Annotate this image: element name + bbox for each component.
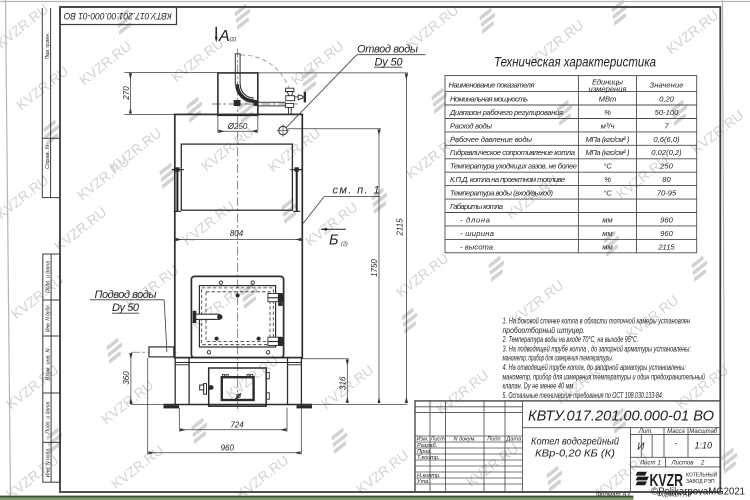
svg-text:- ширина: - ширина (460, 229, 494, 238)
svg-text:мм: мм (602, 229, 613, 238)
svg-text:Инв. N подл.: Инв. N подл. (46, 447, 52, 477)
svg-text:-: - (675, 439, 678, 449)
svg-text:(2): (2) (341, 242, 348, 248)
svg-text:Расход воды: Расход воды (450, 121, 492, 130)
svg-text:МПа (кгс/см² ): МПа (кгс/см² ) (586, 135, 630, 144)
svg-text:Справ. N: Справ. N (45, 144, 51, 169)
svg-text:1750: 1750 (370, 259, 379, 277)
svg-text:КВТУ.017.201.00.000-01 ВО: КВТУ.017.201.00.000-01 ВО (64, 11, 172, 21)
svg-text:Листов: Листов (671, 460, 694, 466)
svg-text:Ø250: Ø250 (227, 122, 248, 131)
svg-text:0,02(0,2): 0,02(0,2) (651, 148, 682, 157)
svg-text:Котел водогрейный: Котел водогрейный (531, 436, 619, 448)
svg-text:Температура уходящих газов, не: Температура уходящих газов, не более (450, 162, 577, 171)
svg-text:МПа (кгс/см² ): МПа (кгс/см² ) (586, 148, 630, 157)
svg-text:2115: 2115 (657, 242, 675, 251)
svg-text:960: 960 (221, 444, 235, 453)
svg-text:Dy 50: Dy 50 (112, 302, 140, 314)
svg-text:5. Остальные технические треб: 5. Остальные технические требования по О… (503, 390, 664, 400)
svg-text:(2): (2) (230, 37, 237, 43)
svg-text:КОТЕЛЬНЫЙ: КОТЕЛЬНЫЙ (686, 471, 718, 479)
svg-text:316: 316 (339, 376, 348, 390)
svg-text:50-100: 50-100 (655, 108, 679, 117)
svg-text:2: 2 (700, 460, 705, 466)
svg-text:Температура воды (вход/выход): Температура воды (вход/выход) (450, 189, 553, 198)
svg-text:250: 250 (659, 162, 673, 171)
svg-text:270: 270 (122, 86, 131, 101)
svg-text:ЗАВОД РЭП: ЗАВОД РЭП (686, 479, 715, 485)
svg-text:- длина: - длина (460, 215, 490, 224)
svg-text:%: % (604, 108, 611, 117)
svg-text:Утв.: Утв. (416, 479, 430, 485)
svg-text:Т.контр.: Т.контр. (417, 455, 440, 461)
svg-text:Значение: Значение (650, 81, 684, 90)
svg-text:Взам. инв. N: Взам. инв. N (46, 348, 52, 381)
svg-text:Габариты котла: Габариты котла (450, 202, 503, 211)
svg-text:7: 7 (664, 121, 669, 130)
svg-text:°С: °С (603, 189, 612, 198)
svg-text:Масштаб: Масштаб (689, 429, 718, 435)
svg-text:Отвод воды: Отвод воды (357, 44, 418, 56)
svg-text:1: 1 (658, 460, 661, 466)
svg-text:1:10: 1:10 (695, 441, 713, 451)
svg-text:Рабочее давление воды: Рабочее давление воды (450, 135, 532, 144)
svg-text:Гидравлическое сопротивление к: Гидравлическое сопротивление котла (450, 148, 575, 157)
svg-text:724: 724 (230, 421, 244, 430)
svg-text:Dy 50: Dy 50 (375, 57, 404, 69)
svg-text:70-95: 70-95 (657, 189, 677, 198)
svg-text:Масса: Масса (667, 429, 685, 435)
svg-text:Изм.: Изм. (417, 437, 429, 443)
svg-text:см. п. 1: см. п. 1 (333, 185, 380, 197)
svg-text:960: 960 (660, 215, 673, 224)
svg-text:Лист: Лист (429, 437, 445, 443)
svg-text:МВт: МВт (599, 95, 617, 104)
svg-text:Инв. N дубл.: Инв. N дубл. (46, 304, 52, 332)
svg-text:N докум.: N докум. (453, 437, 476, 443)
svg-text:960: 960 (660, 229, 673, 238)
svg-text:мм: мм (602, 215, 613, 224)
svg-text:Подвод воды: Подвод воды (95, 289, 157, 301)
svg-text:Перв. примен.: Перв. примен. (45, 33, 51, 59)
svg-text:КВТУ.017.201.00.000-01 ВО: КВТУ.017.201.00.000-01 ВО (528, 408, 714, 425)
svg-text:Диапазон рабочего регулировани: Диапазон рабочего регулирования (449, 108, 563, 117)
svg-text:К.П.Д. котла на проектном топл: К.П.Д. котла на проектном топливе (450, 175, 565, 184)
svg-text:- высота: - высота (460, 242, 493, 251)
svg-text:0,6(6,0): 0,6(6,0) (653, 135, 680, 144)
svg-text:Подп.: Подп. (487, 437, 502, 443)
svg-text:Б: Б (329, 233, 338, 249)
svg-text:КВр-0,20 КБ (К): КВр-0,20 КБ (К) (535, 448, 615, 460)
svg-text:80: 80 (662, 175, 671, 184)
svg-text:Наименование показателя: Наименование показателя (449, 81, 535, 90)
svg-text:Лист: Лист (639, 460, 655, 466)
svg-text:м³/ч: м³/ч (601, 121, 615, 130)
svg-text:Подп. и дата: Подп. и дата (46, 261, 52, 293)
svg-text:А: А (218, 28, 230, 45)
svg-text:Подп. и дата: Подп. и дата (46, 402, 52, 434)
svg-text:0,20: 0,20 (659, 95, 675, 104)
svg-text:мм: мм (602, 242, 613, 251)
svg-text:804: 804 (230, 229, 244, 238)
svg-text:Лит.: Лит. (638, 429, 653, 435)
svg-text:Дата: Дата (505, 437, 521, 443)
svg-text:измерения: измерения (589, 84, 627, 93)
svg-text:2115: 2115 (396, 218, 405, 237)
svg-text:°С: °С (603, 162, 612, 171)
svg-text:И: И (637, 442, 645, 453)
svg-text:Номинальная мощность: Номинальная мощность (450, 95, 528, 104)
svg-text:Формат А3: Формат А3 (657, 491, 691, 498)
svg-text:360: 360 (122, 371, 131, 385)
svg-text:%: % (604, 175, 611, 184)
svg-text:Техническая характеристика: Техническая характеристика (494, 55, 656, 70)
